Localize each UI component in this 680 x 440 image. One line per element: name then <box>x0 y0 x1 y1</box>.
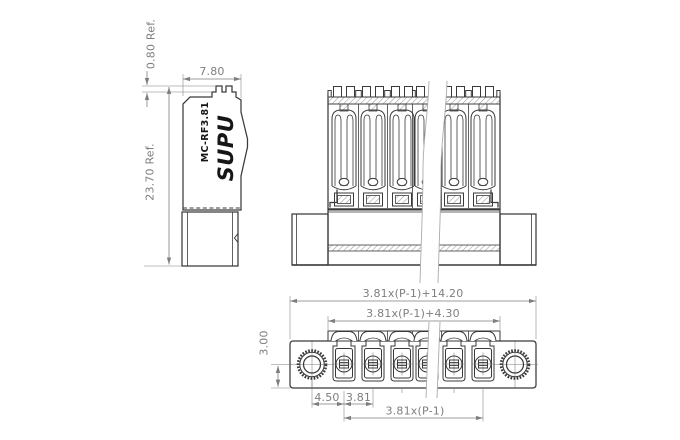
lever-bottom-arc <box>361 186 385 190</box>
clamp-bar-left <box>364 115 370 186</box>
solder-tab <box>376 87 384 98</box>
solder-tab <box>457 87 465 98</box>
contact-window-hatch <box>448 196 461 204</box>
edge-half-tab-right <box>497 91 500 98</box>
edge-half-tab-left <box>328 91 331 98</box>
lever-hole <box>368 178 378 185</box>
lever-bottom-arc <box>332 186 356 190</box>
dim-label-tab-height: 0.80 Ref. <box>145 19 158 69</box>
brand-logo: SUPU <box>214 115 238 182</box>
contact-window-hatch <box>367 196 380 204</box>
dim-label-end-to-first: 4.50 <box>314 391 339 404</box>
front-top-hatch-strip <box>328 97 500 104</box>
bottom-terminal-position <box>470 332 496 382</box>
bottom-terminal-position <box>360 332 386 382</box>
wire-funnel <box>441 332 467 342</box>
contact-window-hatch <box>477 196 490 204</box>
clamp-bar-left <box>474 115 480 186</box>
front-terminal-position <box>390 87 414 207</box>
clamp-bar-right <box>457 115 463 186</box>
wire-funnel <box>331 332 357 342</box>
dim-label-overall-width: 3.81x(P-1)+14.20 <box>363 287 464 300</box>
latch-hook-left <box>330 190 337 208</box>
front-terminal-position <box>471 87 495 207</box>
boundary-tab <box>466 91 472 98</box>
contact-window-hatch <box>338 196 351 204</box>
wire-funnel <box>360 332 386 342</box>
front-terminal-position <box>361 87 385 207</box>
lever-bottom-arc <box>390 186 414 190</box>
bottom-view <box>289 322 538 398</box>
bottom-terminal-position <box>441 332 467 382</box>
dim-label-pitch: 3.81 <box>346 391 371 404</box>
clamp-lever-outer <box>471 110 495 186</box>
model-number: MC-RF3.81 <box>200 102 211 163</box>
lever-hole <box>339 178 349 185</box>
lever-bottom-arc <box>471 186 495 190</box>
bottom-terminal-position <box>331 332 357 382</box>
clamp-bar-left <box>393 115 399 186</box>
bottom-terminal-position <box>389 332 415 382</box>
dim-label-hole-offset: 3.00 <box>258 330 271 355</box>
clamp-bar-right <box>347 115 353 186</box>
solder-tab <box>363 87 371 98</box>
mounting-flange-right <box>500 214 536 265</box>
solder-tab <box>347 87 355 98</box>
side-plug-shroud <box>182 212 238 266</box>
lever-hole <box>397 178 407 185</box>
clamp-lever-outer <box>332 110 356 186</box>
clamp-bar-right <box>376 115 382 186</box>
dim-label-height: 23.70 Ref. <box>144 143 157 200</box>
solder-tab <box>486 87 494 98</box>
contact-window-hatch <box>396 196 409 204</box>
dim-label-width: 7.80 <box>199 65 224 78</box>
front-view <box>292 81 536 283</box>
lever-hole <box>478 178 488 185</box>
wire-funnel <box>470 332 496 342</box>
clamp-lever-outer <box>390 110 414 186</box>
clamp-bar-left <box>445 115 451 186</box>
mounting-flange-left <box>292 214 328 265</box>
solder-tab <box>473 87 481 98</box>
lower-hatch-band <box>328 245 500 251</box>
solder-tab <box>334 87 342 98</box>
clamp-bar-left <box>335 115 341 186</box>
dim-label-header-width: 3.81x(P-1)+4.30 <box>366 307 460 320</box>
solder-tab <box>417 87 425 98</box>
drawing-canvas: SUPU MC-RF3.81 <box>0 0 680 440</box>
clamp-bar-right <box>405 115 411 186</box>
solder-tab <box>392 87 400 98</box>
front-terminal-position <box>332 87 356 207</box>
dim-label-span: 3.81x(P-1) <box>386 405 445 418</box>
lever-hole <box>449 178 459 185</box>
side-view: SUPU MC-RF3.81 <box>182 86 248 266</box>
clamp-bar-right <box>486 115 492 186</box>
lever-bottom-arc <box>442 186 466 190</box>
boundary-tab <box>385 91 391 98</box>
clamp-lever-outer <box>361 110 385 186</box>
wire-funnel <box>389 332 415 342</box>
solder-tab <box>405 87 413 98</box>
technical-drawing: SUPU MC-RF3.81 <box>0 0 680 440</box>
boundary-tab <box>356 91 362 98</box>
front-terminal-positions <box>332 87 495 209</box>
clamp-lever-outer <box>442 110 466 186</box>
